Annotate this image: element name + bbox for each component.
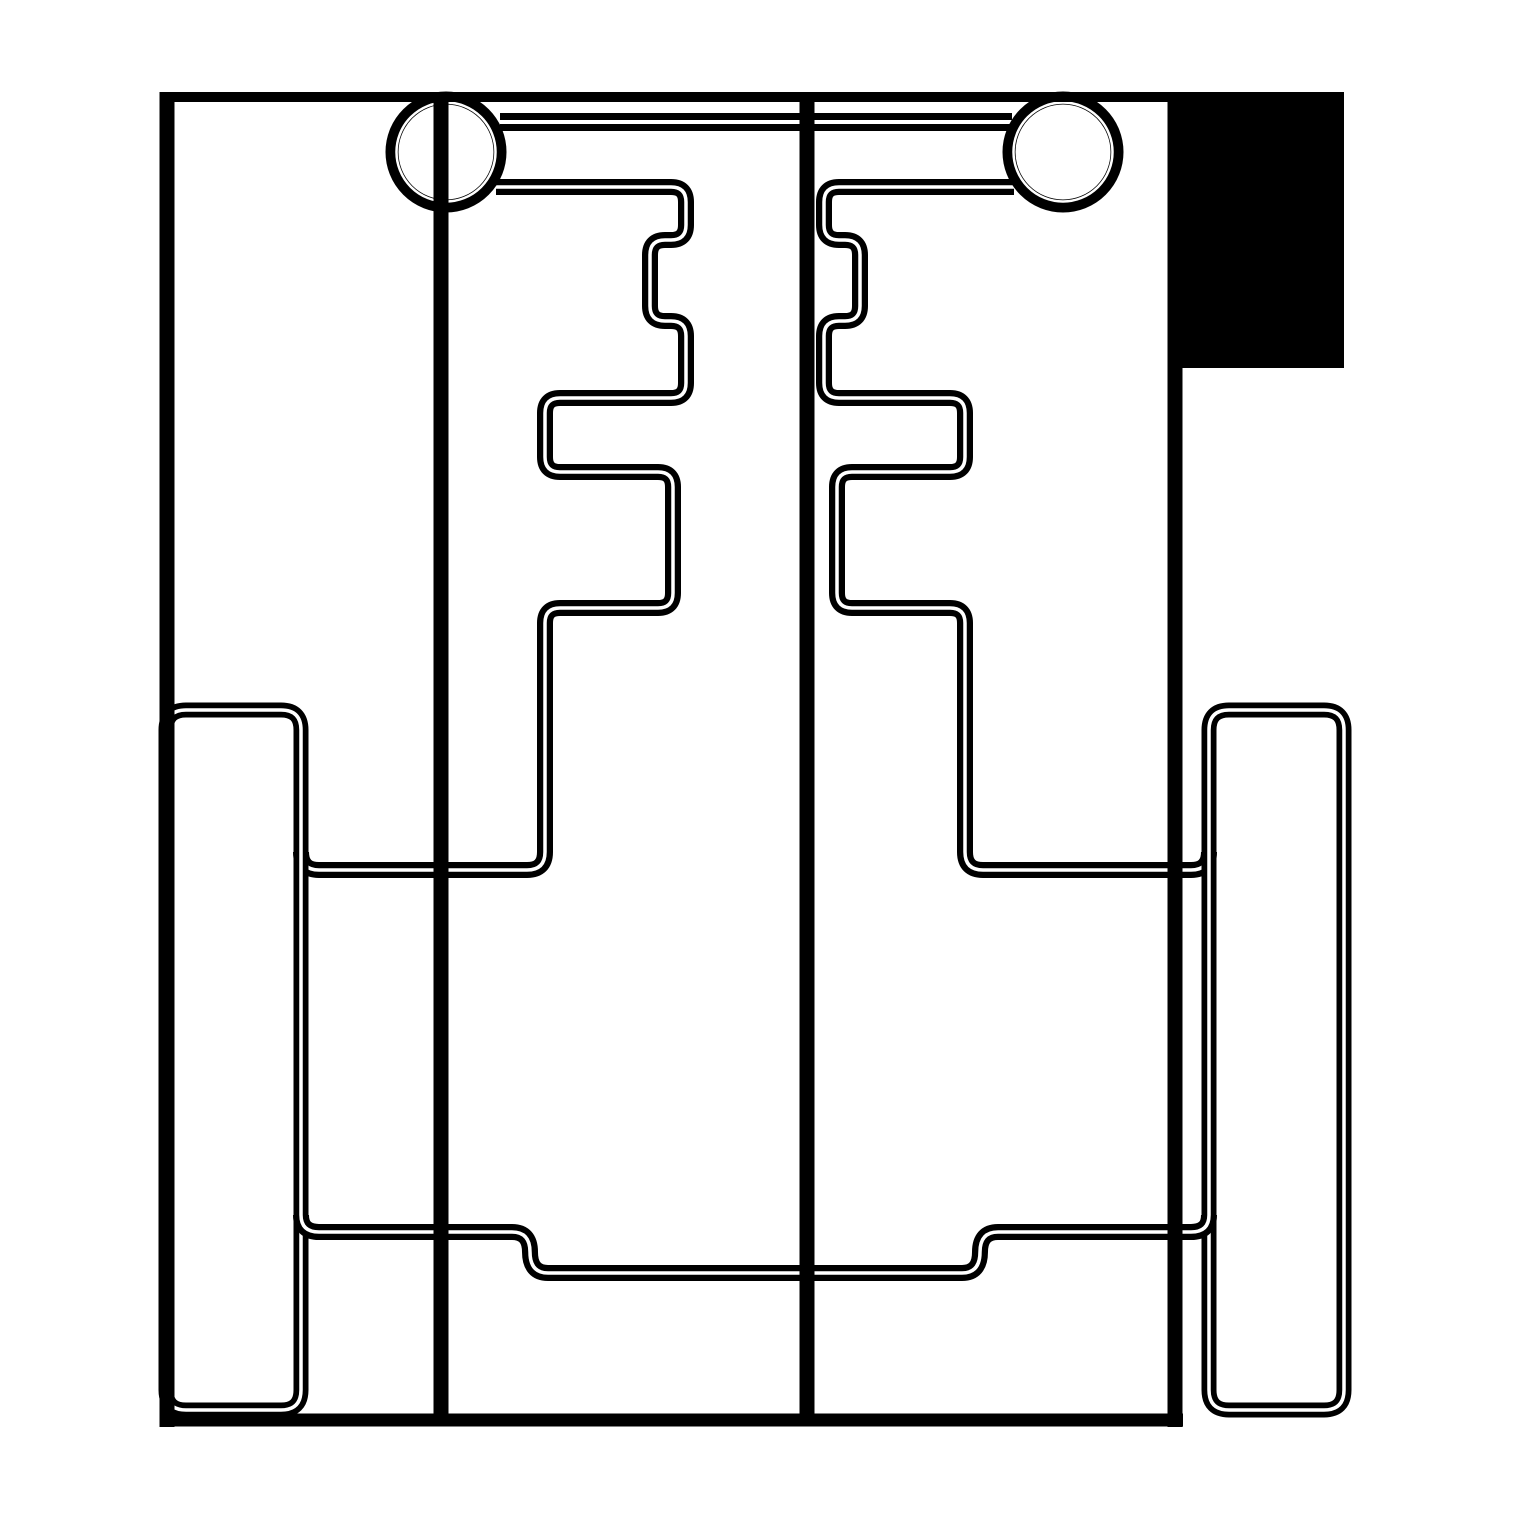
corner-block: [1168, 92, 1344, 368]
gate-contour-right-gap: [824, 187, 1209, 870]
gate-contour-left-gap: [301, 187, 686, 870]
hub-circle-right: [1009, 98, 1117, 206]
wheel-right-gap: [1209, 710, 1344, 1410]
wheel-left: [166, 710, 301, 1410]
chassis-plan-drawing: [0, 0, 1519, 1519]
technical-drawing-canvas: [0, 0, 1519, 1519]
gate-contour-right: [824, 187, 1209, 870]
hub-circle-right-gap: [1014, 103, 1113, 202]
wheel-right: [1209, 710, 1344, 1410]
wheel-left-gap: [166, 710, 301, 1410]
gate-contour-left: [301, 187, 686, 870]
